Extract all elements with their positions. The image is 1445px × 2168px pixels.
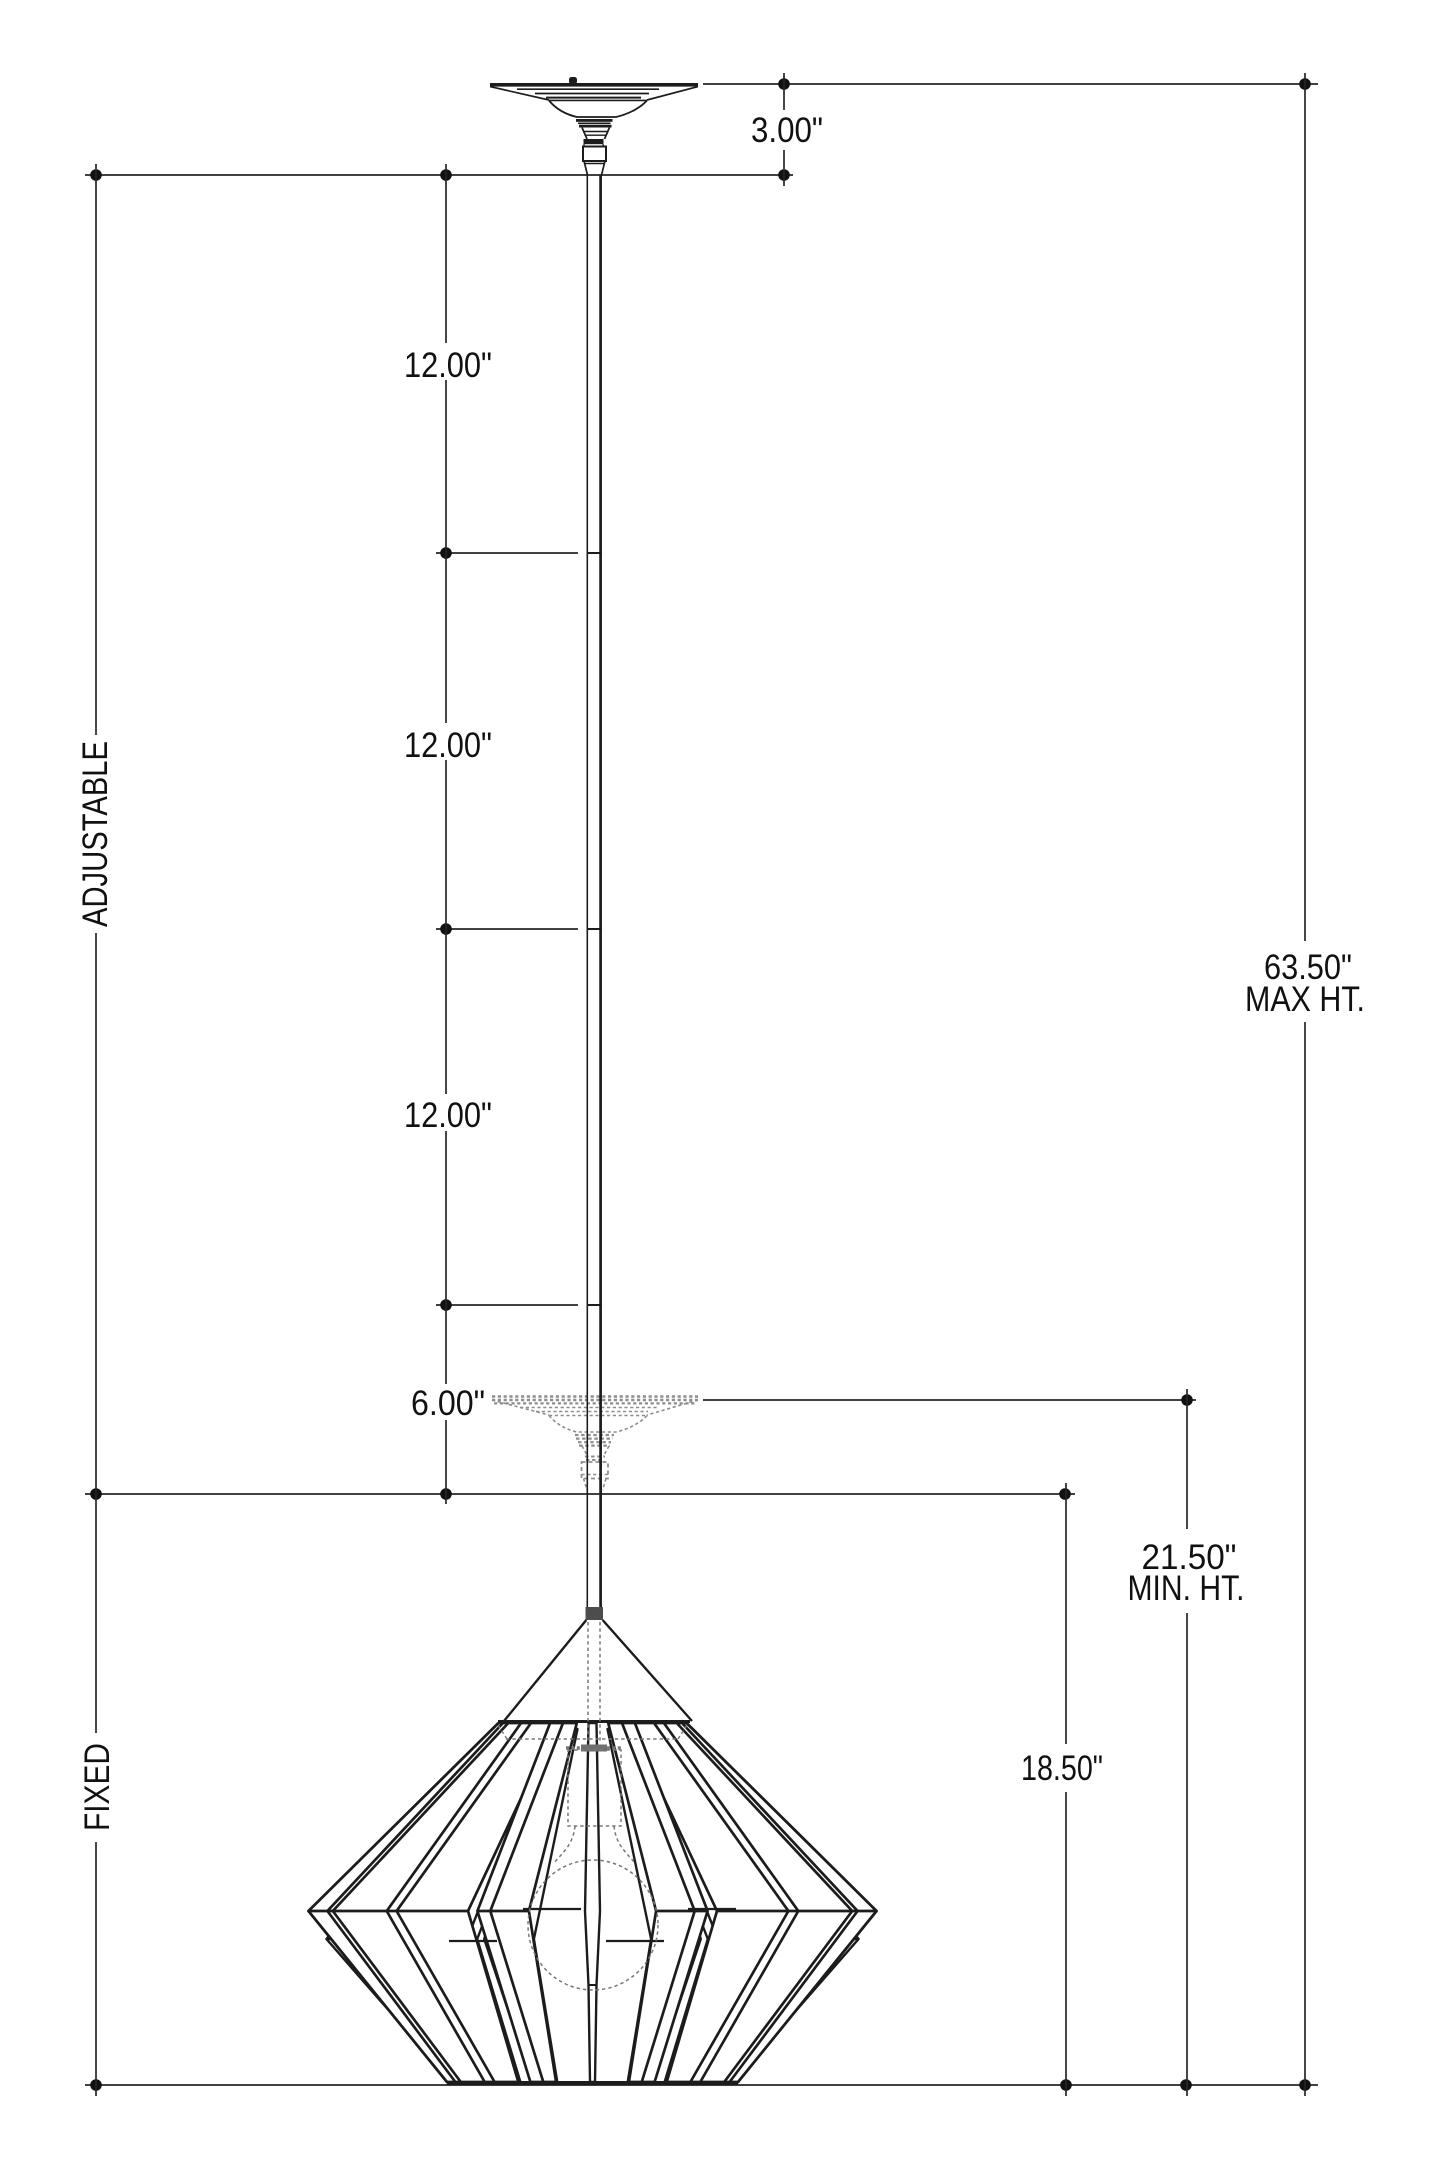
- svg-text:18.50": 18.50": [1021, 1748, 1103, 1788]
- svg-text:12.00": 12.00": [404, 345, 492, 385]
- svg-text:MIN. HT.: MIN. HT.: [1128, 1568, 1245, 1608]
- svg-text:3.00": 3.00": [751, 110, 823, 150]
- svg-text:ADJUSTABLE: ADJUSTABLE: [75, 741, 115, 927]
- svg-text:12.00": 12.00": [404, 1095, 492, 1135]
- svg-text:6.00": 6.00": [411, 1383, 485, 1423]
- svg-text:MAX HT.: MAX HT.: [1245, 979, 1365, 1019]
- svg-text:FIXED: FIXED: [77, 1743, 117, 1831]
- svg-text:12.00": 12.00": [404, 725, 492, 765]
